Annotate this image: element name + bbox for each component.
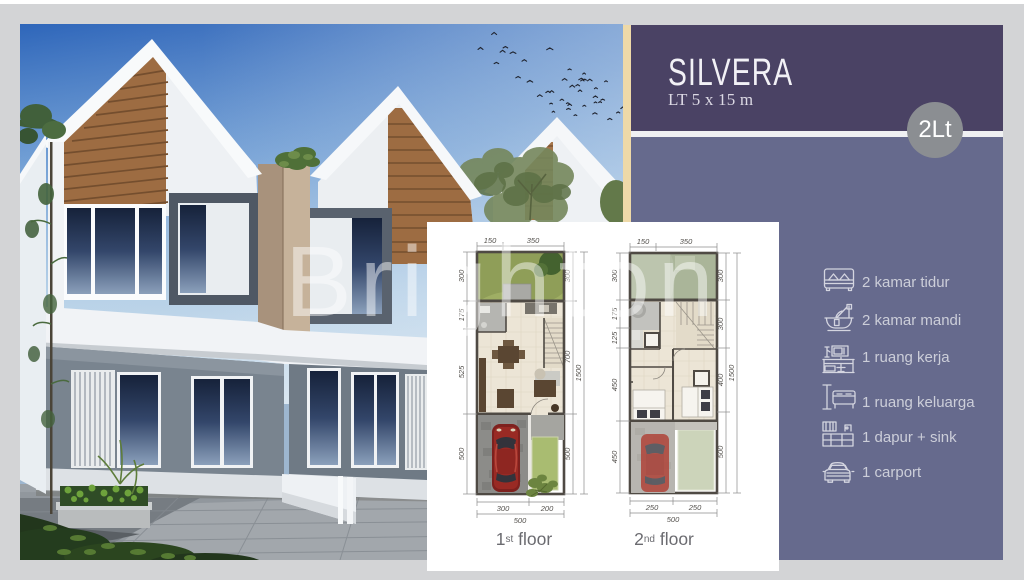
svg-text:500: 500 — [716, 445, 725, 458]
svg-text:700: 700 — [563, 350, 572, 363]
svg-text:300: 300 — [497, 504, 510, 513]
svg-text:1500: 1500 — [574, 364, 583, 382]
svg-text:450: 450 — [610, 378, 619, 391]
svg-text:1 ruang kerja: 1 ruang kerja — [862, 349, 950, 366]
svg-text:2nd floor: 2nd floor — [634, 529, 694, 549]
svg-text:250: 250 — [645, 503, 659, 512]
svg-text:400: 400 — [716, 373, 725, 386]
svg-text:525: 525 — [457, 365, 466, 378]
svg-text:1st floor: 1st floor — [496, 529, 553, 549]
svg-text:500: 500 — [514, 516, 527, 525]
svg-text:2 kamar mandi: 2 kamar mandi — [862, 312, 961, 329]
svg-text:500: 500 — [457, 447, 466, 460]
svg-text:1 carport: 1 carport — [862, 464, 922, 481]
svg-text:1 dapur + sink: 1 dapur + sink — [862, 429, 957, 446]
svg-text:500: 500 — [563, 447, 572, 460]
svg-text:1500: 1500 — [727, 364, 736, 382]
svg-text:250: 250 — [688, 503, 702, 512]
svg-text:500: 500 — [667, 515, 680, 524]
svg-text:1 ruang keluarga: 1 ruang keluarga — [862, 394, 975, 411]
svg-text:2 kamar tidur: 2 kamar tidur — [862, 274, 950, 291]
svg-text:200: 200 — [540, 504, 554, 513]
svg-text:450: 450 — [610, 450, 619, 463]
